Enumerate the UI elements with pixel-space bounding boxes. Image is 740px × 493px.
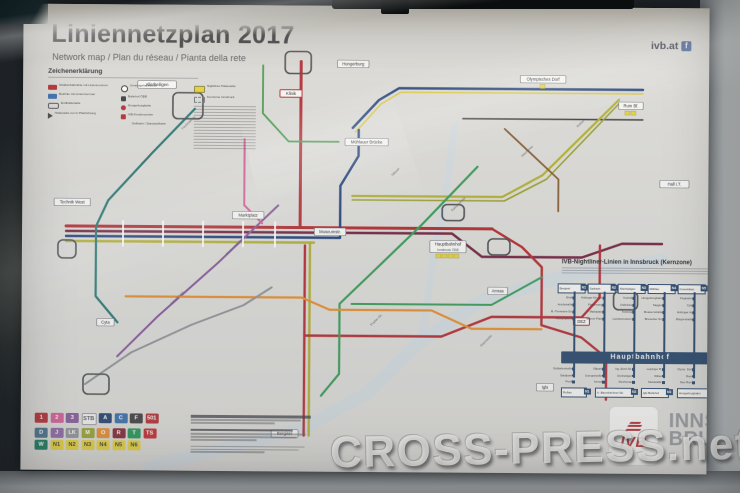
nightliner-line-badge: N1: [584, 388, 591, 395]
nightliner-stop-marker: [572, 380, 575, 383]
nightliner-line-badge: N4: [671, 285, 678, 292]
map-station-label: Rum Bf.: [619, 102, 644, 115]
nightliner-stop: Saggen: [637, 304, 663, 307]
legend-entry-label: Haltestelle nur in Pfeilrichtung: [55, 112, 96, 116]
transit-line: [304, 246, 305, 436]
line-badge: N3: [81, 440, 94, 450]
stop-name: Geyrstraße: [479, 334, 493, 348]
nightliner-badge: [625, 111, 630, 115]
svg-text:Hungerburg: Hungerburg: [342, 61, 365, 66]
nightliner-stop-marker: [633, 311, 636, 314]
funicular-icon: [121, 105, 126, 110]
nightliner-stop: Flughafen: [667, 297, 693, 300]
nightliner-stop-marker: [633, 297, 636, 300]
legend-entry-label: Bahnhof ÖBB: [128, 95, 147, 99]
line-badge: M: [81, 428, 94, 438]
svg-text:Amras: Amras: [492, 288, 504, 293]
transit-line: [85, 286, 272, 385]
transit-line: [352, 98, 619, 198]
svg-text:Cyta: Cyta: [101, 320, 110, 325]
transit-line: [352, 102, 619, 202]
nightliner-stop: Bürgerstraße: [666, 318, 692, 321]
legend-entry: Hungerburgbahn: [121, 104, 187, 110]
nightliner-diagram: Hauptbahnhof BergiselN1KlinikAnichstraße…: [561, 283, 710, 402]
nightliner-stop: Anichstraße: [547, 303, 573, 306]
nightliner-stop-marker: [693, 311, 696, 314]
nightliner-stop-marker: [602, 368, 605, 371]
nightliner-stop-marker: [632, 381, 635, 384]
nightliner-badge: [442, 254, 447, 258]
nightliner-stop: Südbahnstraße: [546, 367, 572, 370]
nightliner-stop: Leipziger Pl.: [636, 368, 662, 371]
line-badge: STB: [81, 413, 96, 425]
svg-text:Innsbruck ÖBB: Innsbruck ÖBB: [437, 248, 458, 252]
nightliner-stop-marker: [603, 304, 606, 307]
svg-text:Olympisches Dorf: Olympisches Dorf: [527, 77, 561, 82]
legend-entry-label: Straßenbahnlinie mit Liniennummer: [59, 84, 108, 88]
nightliner-stop-marker: [663, 311, 666, 314]
nightliner-stop: Hungerburgbahn: [637, 297, 663, 300]
stop-tick: [274, 221, 276, 247]
legend-note-lines: [48, 77, 198, 81]
nightliner-stop-marker: [633, 318, 636, 321]
line-badge: W: [35, 440, 48, 450]
stop-name: Pradler Str.: [369, 313, 383, 327]
map-station-label: Hungerburg: [337, 60, 369, 68]
legend-entry: Bahnhof ÖBB: [121, 95, 187, 101]
nightliner-stop-marker: [692, 368, 695, 371]
legend-entry: IVB-Kundencenter: [121, 113, 187, 119]
line-badge: 3: [66, 413, 79, 423]
legend-entry: Haltestelle nur in Pfeilrichtung: [48, 112, 114, 119]
nightliner-title: IVB-Nightliner-Linien in Innsbruck (Kern…: [562, 259, 710, 266]
line-badge-grid: 123STBACF501DJLKMORTTSWN1N2N3N4N5N6: [35, 413, 159, 453]
line-badge: R: [112, 428, 125, 438]
line-badge: T: [128, 428, 141, 438]
nightliner-stop-marker: [663, 304, 666, 307]
nightliner-badge: [454, 254, 459, 258]
line-badge: LK: [66, 427, 79, 437]
nightliner-stop: Dreiheiligen: [606, 374, 632, 377]
line-badge: N6: [128, 440, 141, 450]
line-badge: 1: [35, 413, 48, 423]
nightliner-stop-marker: [632, 368, 635, 371]
svg-text:Mühlauer Brücke: Mühlauer Brücke: [351, 139, 383, 144]
poster-clip-bar: [332, 0, 634, 9]
nightliner-stop-marker: [572, 367, 575, 370]
line-badge: O: [97, 428, 110, 438]
nightliner-line-badge: N3: [641, 285, 648, 292]
tariff-note-blocks: [190, 415, 310, 459]
legend-column: Nightliner-HaltestelleKernzone Innsbruck: [194, 85, 260, 150]
center-icon: [121, 114, 126, 119]
nightliner-badge: [631, 111, 636, 115]
nightliner-stop: Terminal: [606, 311, 632, 314]
map-station-label: Igls: [536, 383, 553, 391]
line-badge: N2: [66, 440, 79, 450]
nightliner-terminal: Igls Bahnhof: [641, 388, 669, 398]
nightliner-stop-marker: [692, 381, 695, 384]
line-badge: N1: [50, 440, 63, 450]
photo-of-network-map-poster: Liniennetzplan 2017 Network map / Plan d…: [0, 0, 740, 493]
nightliner-stop: Pradl: [546, 380, 572, 383]
zone-icon: [194, 96, 205, 102]
map-station-label: Technik West: [54, 198, 90, 206]
legend-entry: Umsteigehaltestelle: [121, 84, 187, 92]
map-station-label: Klinik: [280, 90, 302, 98]
nightliner-stop-marker: [662, 375, 665, 378]
legend-entry-label: Buslinie mit Liniennummer: [59, 93, 95, 97]
badge-row: WN1N2N3N4N5N6: [35, 440, 159, 451]
nightliner-stop: Gumppstraße: [576, 374, 602, 377]
transit-line: [66, 226, 492, 229]
stop-tick: [202, 221, 204, 247]
nightliner-stop-marker: [572, 374, 575, 377]
nightliner-stop-marker: [603, 297, 606, 300]
map-station-label: Olympisches Dorf: [520, 75, 566, 88]
nightliner-stop-marker: [632, 374, 635, 377]
line-badge: F: [130, 413, 143, 423]
poster: Liniennetzplan 2017 Network map / Plan d…: [20, 4, 709, 475]
nightliner-stop-marker: [663, 297, 666, 300]
window-frame-corner: [0, 0, 48, 24]
line-badge: C: [114, 413, 127, 423]
svg-text:Rum Bf.: Rum Bf.: [623, 103, 638, 108]
nightliner-stop: Sillpark: [576, 367, 602, 370]
nightliner-stop: Landesmuseum: [606, 318, 632, 321]
nightliner-stop-marker: [692, 375, 695, 378]
nightliner-badge: [448, 254, 453, 258]
note-block: [191, 429, 311, 442]
map-station-label: Mühlauer Brücke: [345, 138, 388, 146]
poster-content: Liniennetzplan 2017 Network map / Plan d…: [20, 4, 709, 475]
nightliner-stop-marker: [573, 310, 576, 313]
transit-line: [309, 243, 310, 436]
nightliner-stop: Olymp. Dorf: [666, 368, 692, 371]
map-station-label: Marktplatz: [232, 211, 264, 219]
legend-entry-label: Endhaltestelle: [61, 102, 80, 106]
hub-icon: [121, 85, 128, 92]
stop-tick: [122, 220, 124, 246]
line-badge: J: [50, 427, 63, 437]
nightliner-stop: Klinik: [547, 296, 573, 299]
nightliner-stop: Triumphpforte: [546, 317, 572, 320]
legend-entry: Endhaltestelle: [48, 102, 114, 109]
nightliner-stop: Technik: [607, 297, 633, 300]
nightliner-stop-marker: [662, 368, 665, 371]
nightliner-stop-marker: [662, 381, 665, 384]
line-badge: 2: [50, 413, 63, 423]
line-badge: N4: [97, 440, 110, 450]
nightliner-hub-bar: Hauptbahnhof: [561, 351, 709, 364]
svg-text:Klinik: Klinik: [286, 91, 297, 96]
terminal-loop: [285, 51, 311, 73]
nightliner-stop-marker: [693, 304, 696, 307]
rail-icon: [121, 96, 126, 101]
nightliner-stop: Museumstraße: [636, 311, 662, 314]
badge-row: DJLKMORTTS: [35, 427, 159, 438]
nightliner-stop-marker: [573, 317, 576, 320]
stop-tick: [162, 221, 164, 247]
legend-entry: Nightliner-Haltestelle: [194, 85, 260, 93]
nightliner-stop-marker: [693, 297, 696, 300]
nightliner-stop: Höttinger Au: [666, 311, 692, 314]
nightliner-stop-marker: [693, 318, 696, 321]
line-badge: D: [35, 427, 48, 437]
nightliner-stop: Fürstenweg: [577, 303, 603, 306]
nightliner-line-badge: N1: [581, 284, 588, 291]
nightliner-stop: Neu-Rum: [666, 381, 692, 384]
svg-text:Marktplatz: Marktplatz: [238, 213, 257, 218]
nightliner-stop-marker: [603, 318, 606, 321]
nightliner-stop: Höttinger Kirchpl.: [577, 296, 603, 299]
nightliner-line-badge: N2: [611, 285, 618, 292]
legend-columns: Straßenbahnlinie mit LiniennummerBuslini…: [48, 84, 263, 150]
nightliner-stop: M.-Theresien-Str.: [546, 310, 572, 313]
nightliner-stop: Reichenau: [606, 381, 632, 384]
map-station-label: Amras: [488, 287, 508, 295]
nightliner-stop: Rum: [666, 375, 692, 378]
nightliner-stop-marker: [633, 304, 636, 307]
map-station-label: Cyta: [97, 318, 114, 326]
transit-line: [244, 139, 263, 223]
note-block: [191, 415, 311, 425]
transit-line: [66, 231, 662, 258]
loop-icon: [48, 102, 59, 108]
stop-tick: [242, 221, 244, 247]
nightliner-stop-marker: [573, 303, 576, 306]
nightliner-stop-marker: [602, 381, 605, 384]
nightliner-stop-marker: [602, 374, 605, 377]
watermark-text: CROSS-PRESS.net: [330, 420, 740, 479]
nightliner-stop: Cyta: [667, 304, 693, 307]
terminal-loop: [488, 239, 510, 255]
nightliner-line-badge: N3: [666, 389, 673, 396]
line-badge: A: [99, 413, 112, 423]
legend-entry: Kernzone Innsbruck: [194, 96, 260, 103]
cable-icon: [121, 123, 130, 128]
nightliner-stop: Marktplatz: [576, 310, 602, 313]
nightliner-stop: Bozner Platz: [576, 317, 602, 320]
nightliner-stop: Stadtpark: [546, 374, 572, 377]
legend-title: Zeichenerklärung: [48, 68, 263, 77]
nightliner-stop: Ing.-Etzel-Str.: [606, 368, 632, 371]
nightliner-badge: [436, 254, 441, 258]
arrow-icon: [48, 112, 53, 118]
nightliner-stop: Wilten: [636, 374, 662, 377]
bus-icon: [48, 93, 57, 98]
legend-paragraph-lines: [194, 106, 256, 150]
legend-entry-label: Nightliner-Haltestelle: [207, 85, 236, 89]
note-block: [191, 445, 311, 453]
line-badge: 501: [145, 413, 158, 423]
nightliner-stop: Brunecker Str.: [636, 318, 662, 321]
legend-entry-label: Umsteigehaltestelle: [130, 84, 157, 88]
legend-entry-label: IVB-Kundencenter: [128, 113, 153, 117]
legend-column: UmsteigehaltestelleBahnhof ÖBBHungerburg…: [121, 84, 187, 149]
map-station-label: Hall i.T.: [660, 180, 689, 188]
line-badge: N5: [112, 440, 125, 450]
night-icon: [194, 85, 205, 92]
legend-entry-label: Hungerburgbahn: [128, 104, 151, 108]
nightliner-stop: Amras: [576, 380, 602, 383]
nightliner-terminal: A.-Baumkirchner-Str.: [595, 388, 634, 398]
nightliner-stop-marker: [603, 311, 606, 314]
legend-entry: Buslinie mit Liniennummer: [48, 93, 114, 99]
nightliner-terminal: Hungerburgbahn: [677, 388, 710, 398]
poster-clip-notch: [381, 0, 409, 14]
svg-text:Hall i.T.: Hall i.T.: [668, 182, 682, 187]
stop-name: Sillpark: [390, 167, 400, 177]
nightliner-note-lines: [562, 267, 708, 276]
svg-text:Hauptbahnhof: Hauptbahnhof: [435, 242, 462, 247]
svg-text:Igls: Igls: [542, 385, 549, 390]
transit-line: [504, 129, 559, 211]
transit-line: [300, 62, 301, 228]
nightliner-stop-marker: [663, 318, 666, 321]
nightliner-badge: [540, 84, 545, 88]
stop-name: Sadrach: [140, 154, 151, 165]
transit-line: [356, 92, 643, 134]
legend-entry-label: Seilbahn / Standseilbahn: [132, 122, 166, 126]
transit-line: [66, 241, 314, 243]
terminal-loop: [58, 240, 76, 258]
legend-entry: Seilbahn / Standseilbahn: [121, 122, 187, 128]
map-station-label: Museumstr.: [314, 228, 346, 236]
transit-line: [463, 119, 643, 120]
line-badge: TS: [143, 428, 156, 438]
tram-icon: [48, 84, 57, 89]
svg-text:Technik West: Technik West: [60, 199, 86, 204]
nightliner-line-badge: N5: [701, 285, 708, 292]
nightliner-stop-marker: [573, 296, 576, 299]
legend-column: Straßenbahnlinie mit LiniennummerBuslini…: [48, 84, 114, 149]
legend-entry-label: Kernzone Innsbruck: [207, 96, 235, 100]
legend: Zeichenerklärung Straßenbahnlinie mit Li…: [48, 68, 264, 150]
svg-text:Museumstr.: Museumstr.: [319, 229, 341, 234]
legend-entry: Straßenbahnlinie mit Liniennummer: [48, 84, 114, 90]
nightliner-stop: Stubaitalbf.: [636, 381, 662, 384]
badge-row: 123STBACF501: [35, 413, 159, 426]
nightliner-stop: Unibrücke: [607, 304, 633, 307]
nightliner-line-badge: N2: [631, 389, 638, 396]
nightliner-panel: IVB-Nightliner-Linien in Innsbruck (Kern…: [561, 259, 710, 412]
